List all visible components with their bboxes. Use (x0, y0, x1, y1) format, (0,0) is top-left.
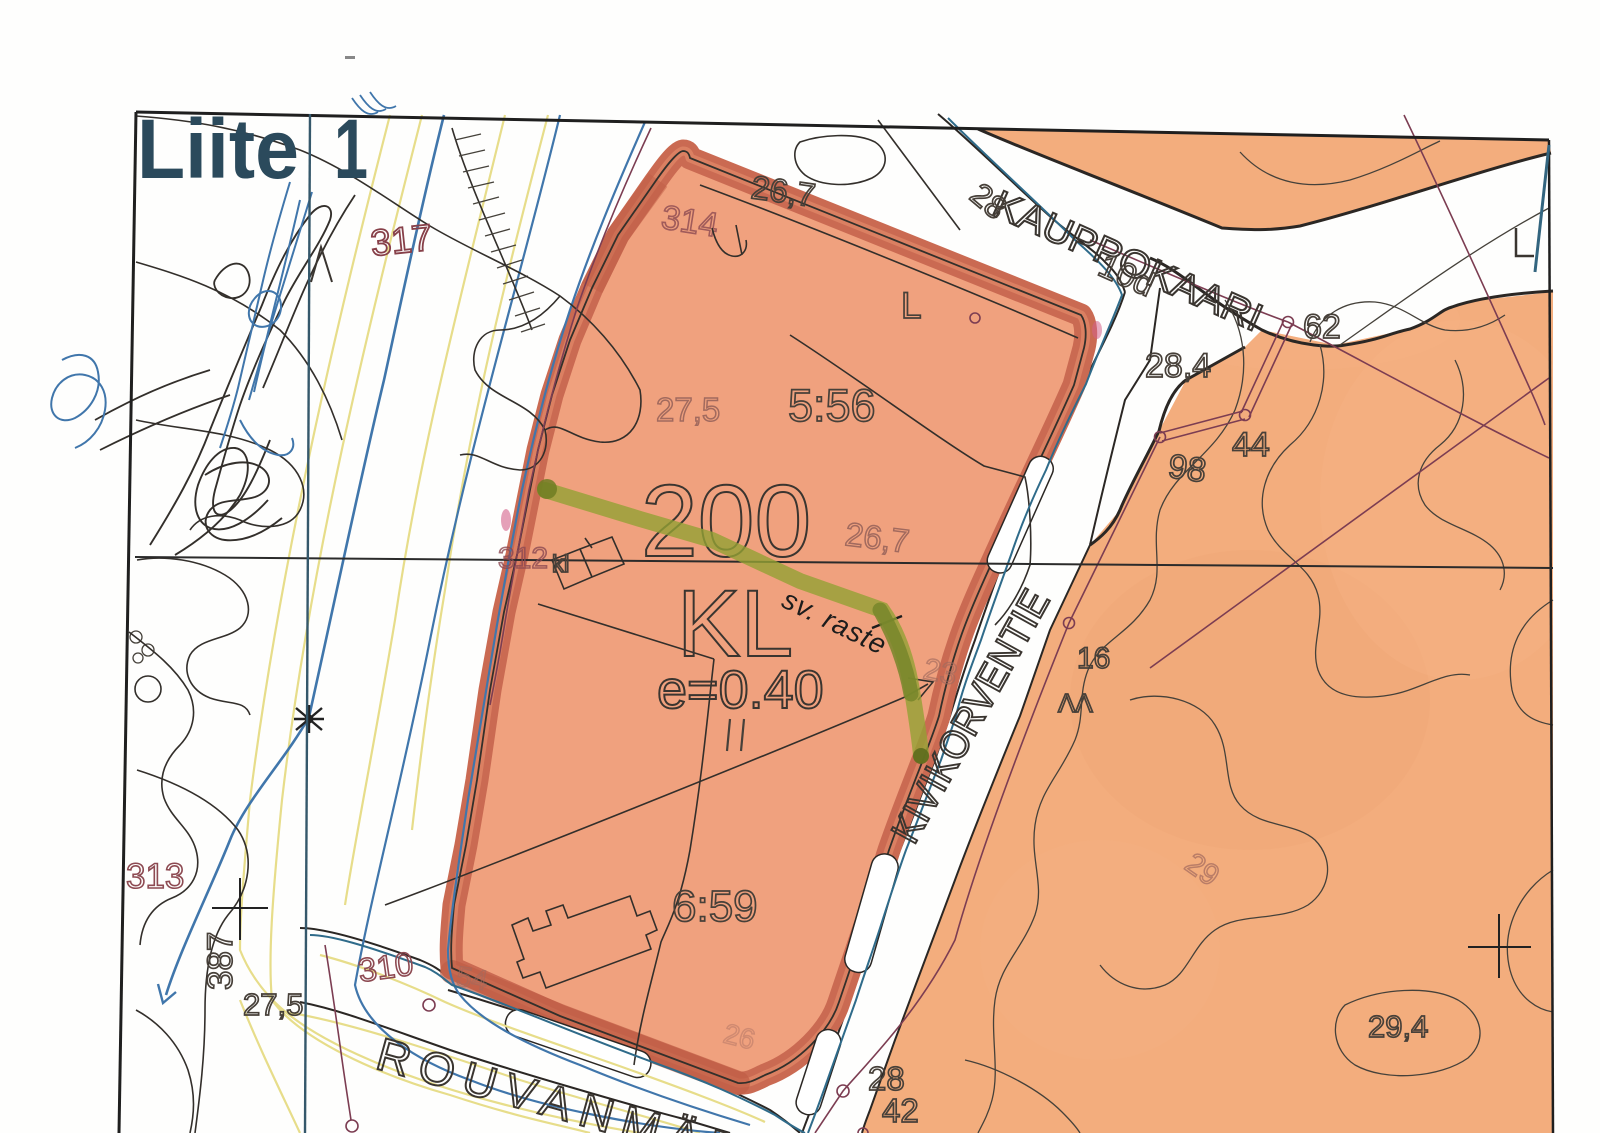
svg-text:387: 387 (201, 932, 240, 990)
svg-text:44: 44 (1232, 426, 1270, 464)
svg-text:98: 98 (1166, 447, 1209, 490)
svg-text:1: 1 (334, 102, 368, 196)
svg-text:28,4: 28,4 (1145, 347, 1211, 385)
svg-text:29,4: 29,4 (1368, 1009, 1428, 1044)
svg-text:54: 54 (454, 960, 490, 996)
svg-text:5:56: 5:56 (788, 380, 876, 431)
svg-text:6:59: 6:59 (672, 882, 758, 931)
svg-text:27,5: 27,5 (656, 391, 720, 428)
svg-text:Liite: Liite (137, 102, 299, 196)
svg-text:62: 62 (1303, 308, 1341, 346)
svg-text:ΛΛ: ΛΛ (1058, 688, 1093, 718)
svg-text:27,5: 27,5 (243, 987, 303, 1022)
svg-text:L: L (901, 285, 922, 326)
svg-text:317: 317 (369, 217, 435, 264)
svg-text:23: 23 (921, 653, 961, 692)
svg-text:16: 16 (1077, 642, 1110, 675)
svg-text:312: 312 (498, 542, 548, 575)
svg-text:kl: kl (552, 551, 569, 578)
svg-text:313: 313 (126, 857, 184, 896)
svg-text:42: 42 (882, 1092, 919, 1129)
svg-text:310: 310 (356, 945, 416, 989)
svg-text:e=0.40: e=0.40 (657, 660, 824, 720)
svg-text:26,7: 26,7 (843, 515, 911, 560)
